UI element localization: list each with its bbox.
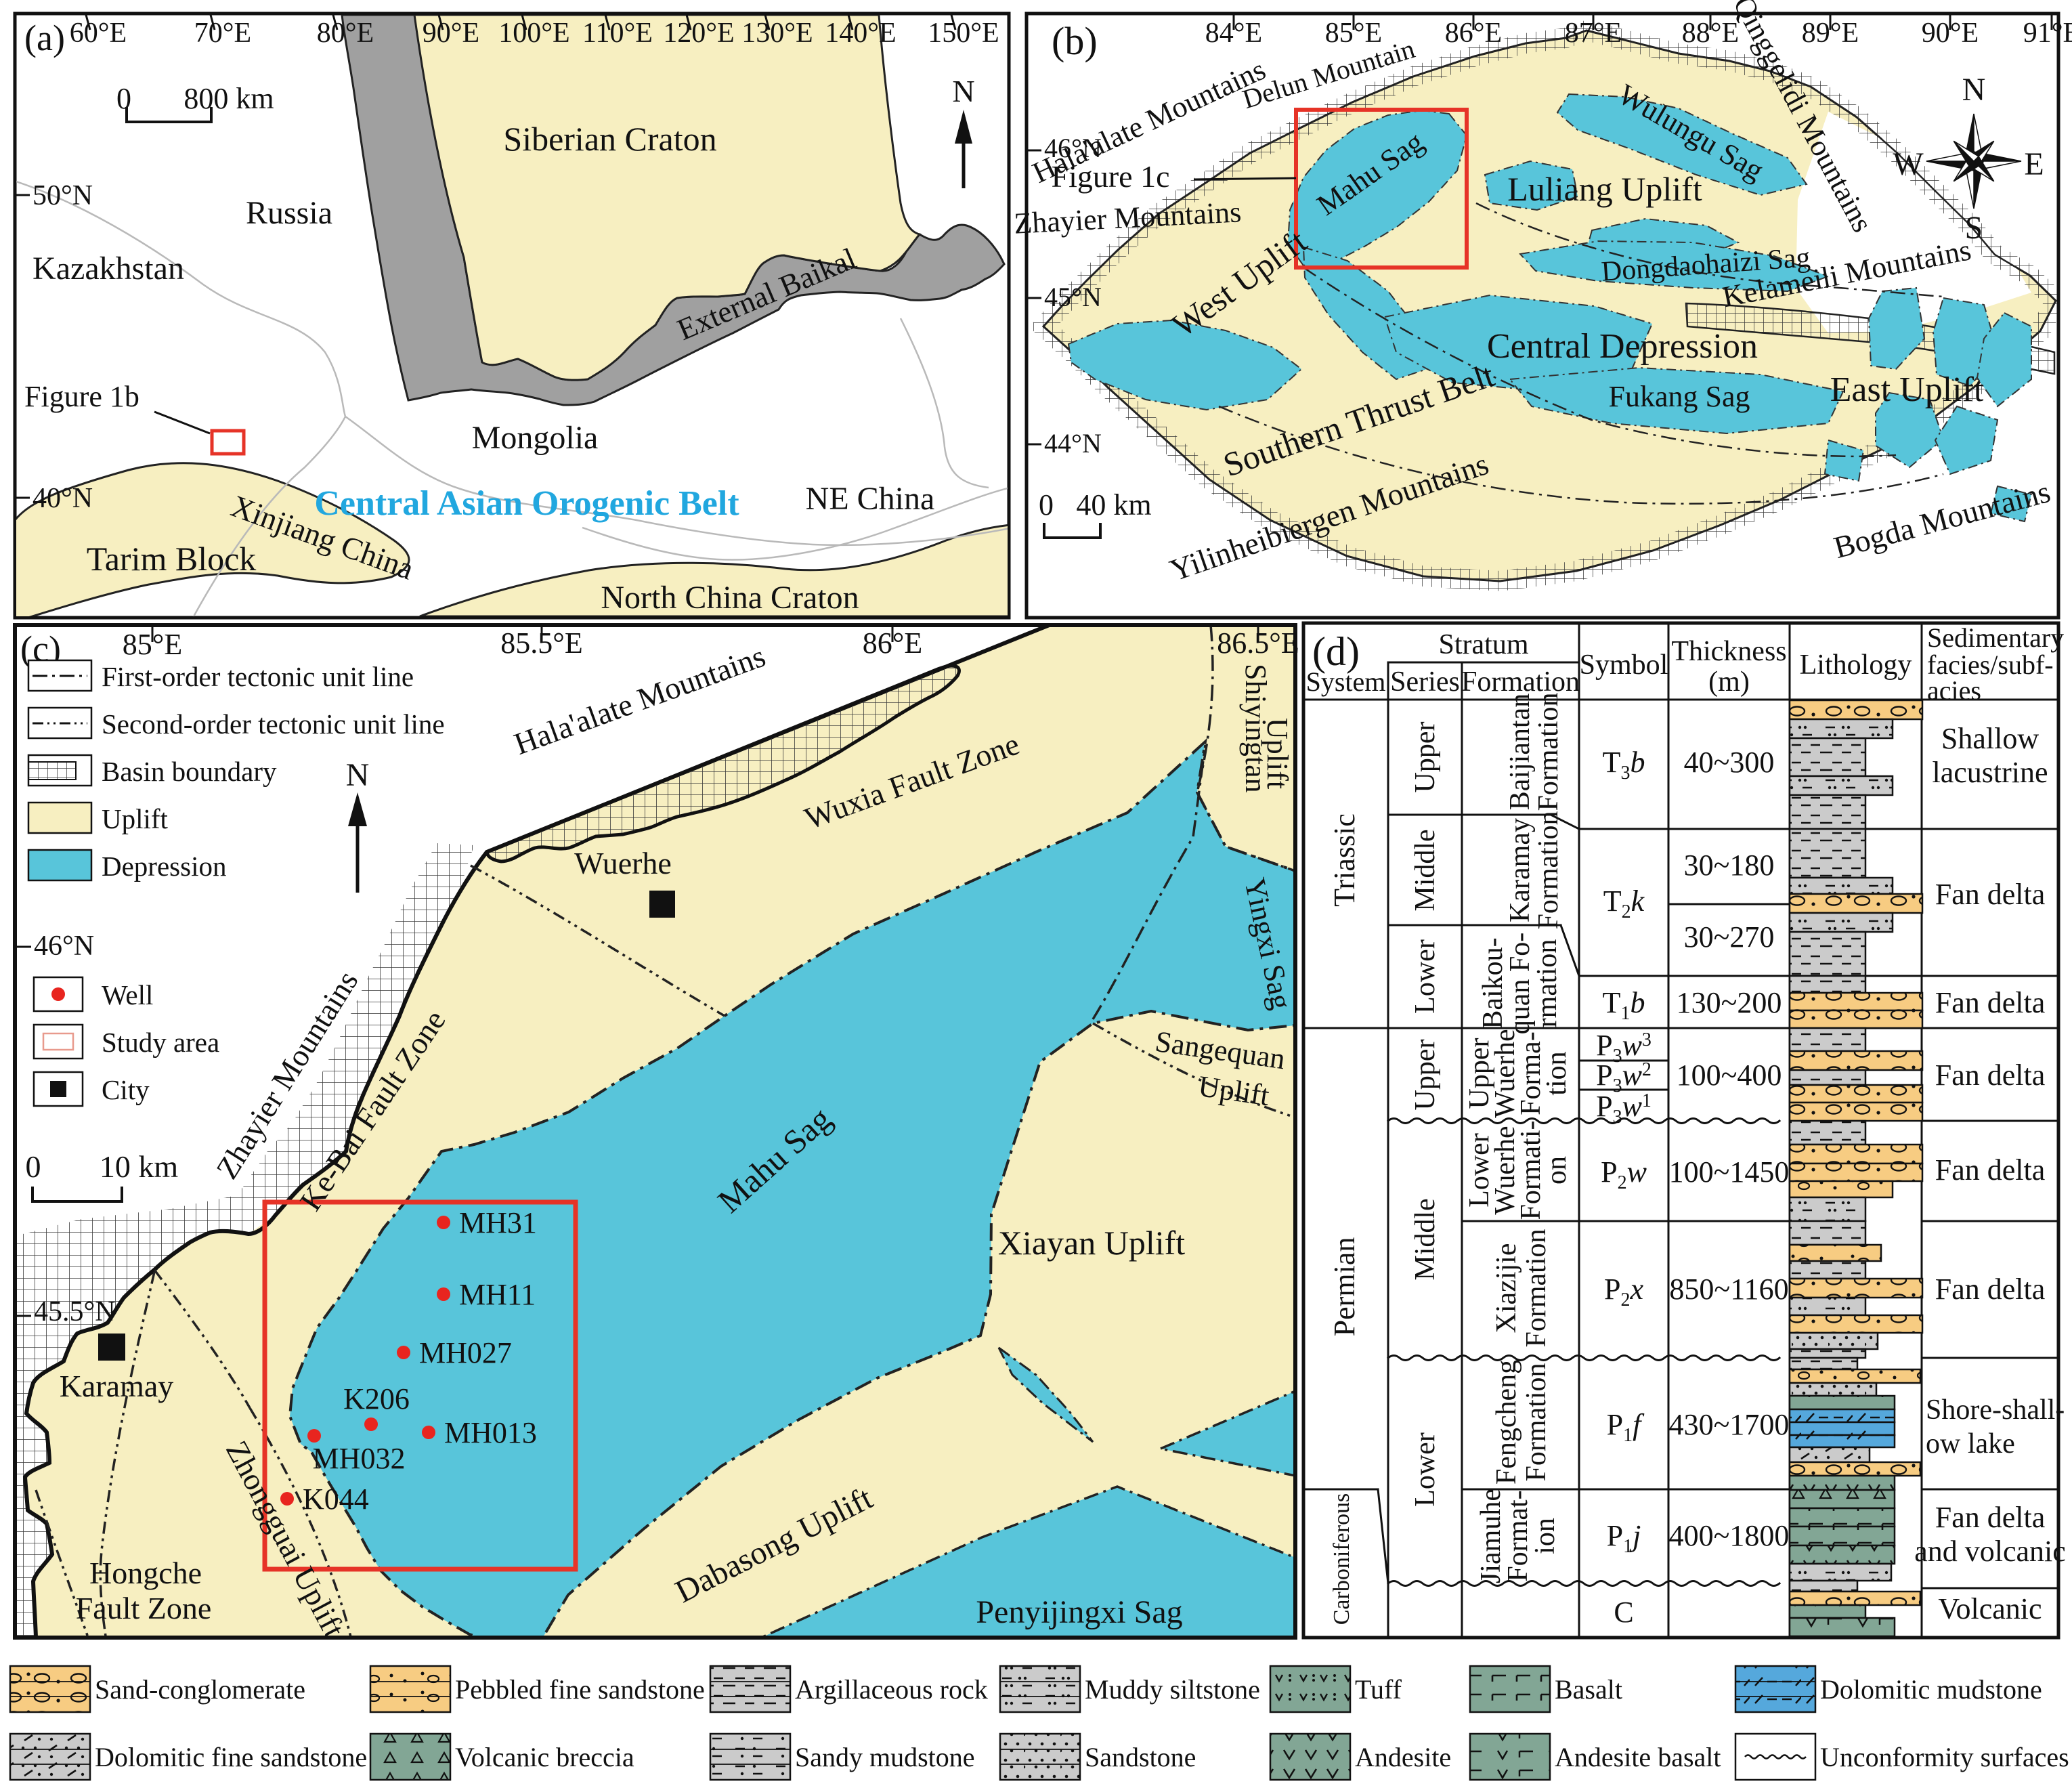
svg-text:40~300: 40~300 bbox=[1684, 746, 1775, 779]
svg-text:800 km: 800 km bbox=[184, 82, 274, 115]
svg-text:Lower: Lower bbox=[1410, 1432, 1441, 1507]
svg-text:850~1160: 850~1160 bbox=[1669, 1273, 1788, 1306]
svg-text:Unconformity surfaces: Unconformity surfaces bbox=[1820, 1742, 2069, 1772]
svg-text:87°E: 87°E bbox=[1565, 18, 1622, 49]
svg-text:Volcanic breccia: Volcanic breccia bbox=[455, 1742, 634, 1772]
svg-text:Tarim Block: Tarim Block bbox=[87, 540, 257, 578]
svg-text:System: System bbox=[1306, 666, 1386, 697]
svg-text:MH027: MH027 bbox=[419, 1336, 512, 1369]
svg-text:0: 0 bbox=[1039, 488, 1054, 521]
svg-text:Symbol: Symbol bbox=[1580, 649, 1668, 681]
svg-text:Hongche: Hongche bbox=[89, 1556, 202, 1590]
svg-text:86°E: 86°E bbox=[1445, 18, 1502, 49]
svg-text:Fengcheng: Fengcheng bbox=[1491, 1360, 1522, 1485]
svg-text:Thickness: Thickness bbox=[1671, 636, 1786, 667]
svg-text:Volcanic: Volcanic bbox=[1938, 1592, 2042, 1625]
svg-text:91°E: 91°E bbox=[2023, 18, 2072, 49]
svg-text:Karamay: Karamay bbox=[60, 1369, 174, 1403]
svg-text:K206: K206 bbox=[343, 1382, 410, 1415]
svg-text:Middle: Middle bbox=[1410, 1198, 1441, 1280]
svg-text:Xiayan Uplift: Xiayan Uplift bbox=[998, 1224, 1185, 1262]
svg-text:Shore-shall-: Shore-shall- bbox=[1926, 1394, 2065, 1426]
svg-text:Luliang Uplift: Luliang Uplift bbox=[1507, 170, 1702, 208]
svg-text:130°E: 130°E bbox=[741, 18, 813, 49]
svg-text:46°N: 46°N bbox=[34, 931, 94, 962]
svg-text:(a): (a) bbox=[24, 18, 65, 58]
svg-text:ion: ion bbox=[1530, 1518, 1561, 1554]
svg-text:Andesite basalt: Andesite basalt bbox=[1555, 1742, 1721, 1772]
svg-text:City: City bbox=[102, 1074, 150, 1105]
svg-text:Fan delta: Fan delta bbox=[1935, 986, 2046, 1019]
svg-text:Siberian Craton: Siberian Craton bbox=[503, 120, 716, 158]
svg-text:Basin boundary: Basin boundary bbox=[102, 756, 277, 787]
svg-text:Formation: Formation bbox=[1521, 1229, 1552, 1348]
svg-text:Lower: Lower bbox=[1410, 939, 1441, 1014]
svg-text:Carboniferous: Carboniferous bbox=[1329, 1493, 1354, 1625]
svg-text:Second-order tectonic unit lin: Second-order tectonic unit line bbox=[102, 708, 445, 740]
svg-text:120°E: 120°E bbox=[663, 18, 734, 49]
svg-text:100~400: 100~400 bbox=[1677, 1059, 1782, 1092]
svg-text:tion: tion bbox=[1541, 1051, 1572, 1095]
svg-text:88°E: 88°E bbox=[1682, 18, 1739, 49]
svg-text:430~1700: 430~1700 bbox=[1669, 1408, 1790, 1441]
svg-text:Uplift: Uplift bbox=[1261, 718, 1294, 789]
svg-text:MH31: MH31 bbox=[459, 1206, 537, 1239]
svg-text:First-order tectonic unit line: First-order tectonic unit line bbox=[102, 661, 414, 692]
svg-text:110°E: 110°E bbox=[582, 18, 653, 49]
svg-text:Formation: Formation bbox=[1533, 811, 1564, 930]
svg-text:45.5°N: 45.5°N bbox=[34, 1296, 116, 1327]
svg-text:N: N bbox=[1962, 72, 1986, 108]
svg-text:Series: Series bbox=[1390, 666, 1460, 698]
svg-text:Formation: Formation bbox=[1533, 693, 1564, 811]
svg-text:Argillaceous rock: Argillaceous rock bbox=[795, 1674, 988, 1705]
svg-text:Lithology: Lithology bbox=[1800, 649, 1912, 681]
svg-text:Sedimentary: Sedimentary bbox=[1927, 622, 2064, 653]
svg-text:Fan delta: Fan delta bbox=[1935, 1501, 2046, 1534]
svg-text:Fan delta: Fan delta bbox=[1935, 1153, 2046, 1187]
svg-text:Muddy siltstone: Muddy siltstone bbox=[1085, 1674, 1260, 1705]
svg-text:acies: acies bbox=[1927, 675, 1981, 706]
svg-text:Penyijingxi Sag: Penyijingxi Sag bbox=[976, 1594, 1182, 1630]
svg-text:Middle: Middle bbox=[1410, 829, 1441, 911]
svg-text:90°E: 90°E bbox=[1922, 18, 1979, 49]
svg-text:Upper: Upper bbox=[1410, 1040, 1441, 1111]
svg-text:Central Depression: Central Depression bbox=[1487, 327, 1758, 366]
svg-text:400~1800: 400~1800 bbox=[1669, 1519, 1790, 1552]
svg-text:and volcanic: and volcanic bbox=[1914, 1535, 2066, 1568]
svg-text:Permian: Permian bbox=[1328, 1237, 1361, 1337]
svg-text:86.5°E: 86.5°E bbox=[1217, 626, 1299, 660]
svg-text:60°E: 60°E bbox=[70, 18, 127, 49]
svg-text:Uplift: Uplift bbox=[102, 803, 169, 834]
svg-text:89°E: 89°E bbox=[1802, 18, 1859, 49]
svg-text:Triassic: Triassic bbox=[1328, 813, 1361, 907]
svg-text:rmation: rmation bbox=[1532, 939, 1563, 1028]
svg-text:40 km: 40 km bbox=[1076, 488, 1151, 521]
svg-text:0: 0 bbox=[116, 82, 131, 115]
svg-text:lacustrine: lacustrine bbox=[1932, 756, 2048, 789]
svg-text:N: N bbox=[952, 74, 974, 108]
svg-text:on: on bbox=[1541, 1156, 1572, 1185]
svg-text:MH013: MH013 bbox=[444, 1416, 537, 1449]
svg-text:100°E: 100°E bbox=[498, 18, 569, 49]
svg-text:Dolomitic fine sandstone: Dolomitic fine sandstone bbox=[95, 1742, 367, 1772]
svg-text:130~200: 130~200 bbox=[1677, 986, 1782, 1019]
svg-text:C: C bbox=[1614, 1596, 1633, 1629]
svg-text:30~270: 30~270 bbox=[1684, 920, 1775, 954]
svg-text:Xiazijie: Xiazijie bbox=[1491, 1243, 1522, 1334]
svg-text:(b): (b) bbox=[1052, 19, 1098, 63]
svg-text:100~1450: 100~1450 bbox=[1669, 1155, 1790, 1189]
svg-text:150°E: 150°E bbox=[928, 18, 999, 49]
svg-text:Depression: Depression bbox=[102, 851, 226, 882]
svg-text:0: 0 bbox=[26, 1149, 41, 1184]
svg-text:90°E: 90°E bbox=[423, 18, 479, 49]
svg-text:Basalt: Basalt bbox=[1555, 1674, 1622, 1705]
svg-text:44°N: 44°N bbox=[1044, 428, 1102, 458]
svg-text:Sandy mudstone: Sandy mudstone bbox=[795, 1742, 975, 1772]
svg-text:50°N: 50°N bbox=[33, 180, 93, 211]
svg-text:Dolomitic mudstone: Dolomitic mudstone bbox=[1820, 1674, 2042, 1705]
svg-text:Sand-conglomerate: Sand-conglomerate bbox=[95, 1674, 305, 1705]
svg-text:Shallow: Shallow bbox=[1941, 722, 2039, 755]
svg-text:N: N bbox=[346, 757, 370, 793]
svg-text:70°E: 70°E bbox=[194, 18, 251, 49]
svg-text:Figure 1b: Figure 1b bbox=[24, 380, 139, 413]
svg-text:E: E bbox=[2024, 146, 2044, 182]
svg-text:Fukang Sag: Fukang Sag bbox=[1609, 380, 1750, 413]
svg-text:Fan delta: Fan delta bbox=[1935, 1059, 2046, 1092]
svg-text:30~180: 30~180 bbox=[1684, 849, 1775, 882]
svg-text:S: S bbox=[1965, 210, 1983, 246]
svg-text:MH032: MH032 bbox=[313, 1442, 406, 1475]
svg-text:(m): (m) bbox=[1708, 666, 1750, 698]
svg-text:Central Asian Orogenic Belt: Central Asian Orogenic Belt bbox=[314, 484, 739, 523]
svg-text:Sandstone: Sandstone bbox=[1085, 1742, 1196, 1772]
svg-text:MH11: MH11 bbox=[459, 1278, 536, 1311]
svg-text:84°E: 84°E bbox=[1205, 18, 1262, 49]
svg-text:Karamay: Karamay bbox=[1505, 818, 1536, 922]
svg-text:East Uplift: East Uplift bbox=[1830, 370, 1984, 409]
svg-text:Andesite: Andesite bbox=[1355, 1742, 1451, 1772]
svg-text:40°N: 40°N bbox=[33, 483, 93, 514]
svg-text:Well: Well bbox=[102, 979, 153, 1010]
svg-text:85.5°E: 85.5°E bbox=[500, 626, 582, 660]
svg-text:Baijiantan: Baijiantan bbox=[1505, 694, 1536, 811]
svg-text:86°E: 86°E bbox=[863, 626, 922, 660]
svg-text:NE China: NE China bbox=[806, 481, 935, 517]
svg-text:45°N: 45°N bbox=[1044, 282, 1102, 312]
svg-text:Stratum: Stratum bbox=[1439, 629, 1529, 660]
svg-text:10 km: 10 km bbox=[100, 1149, 179, 1184]
svg-text:ow lake: ow lake bbox=[1926, 1428, 2015, 1459]
svg-text:80°E: 80°E bbox=[317, 18, 374, 49]
svg-text:W: W bbox=[1893, 146, 1924, 182]
svg-text:Study area: Study area bbox=[102, 1027, 219, 1058]
svg-text:140°E: 140°E bbox=[825, 18, 896, 49]
svg-text:Pebbled fine sandstone: Pebbled fine sandstone bbox=[455, 1674, 705, 1705]
svg-text:Kazakhstan: Kazakhstan bbox=[33, 251, 184, 286]
svg-text:Tuff: Tuff bbox=[1355, 1674, 1402, 1705]
svg-text:Upper: Upper bbox=[1410, 722, 1441, 793]
svg-text:85°E: 85°E bbox=[123, 628, 182, 661]
svg-text:Fan delta: Fan delta bbox=[1935, 1273, 2046, 1306]
svg-text:Wuerhe: Wuerhe bbox=[574, 846, 672, 880]
svg-text:North China Craton: North China Craton bbox=[601, 580, 859, 616]
svg-text:K044: K044 bbox=[303, 1482, 369, 1516]
svg-text:Fault Zone: Fault Zone bbox=[76, 1591, 212, 1625]
svg-text:Fan delta: Fan delta bbox=[1935, 878, 2046, 911]
svg-text:Mongolia: Mongolia bbox=[472, 420, 599, 456]
svg-text:Formation: Formation bbox=[1521, 1363, 1552, 1482]
svg-text:Russia: Russia bbox=[246, 195, 332, 231]
